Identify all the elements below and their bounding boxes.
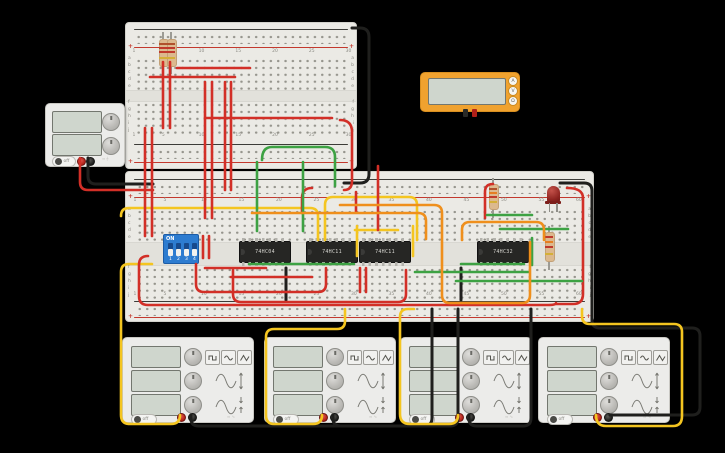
power-supply-power-label: off (64, 159, 70, 164)
fg-branding: ≈ ∿ (227, 415, 235, 420)
ic-pins (309, 238, 355, 242)
row-letter: c (128, 71, 130, 76)
column-number: 25 (314, 293, 320, 298)
power-supply-positive-terminal[interactable] (77, 157, 86, 166)
fg-branding: ≈ ∿ (369, 415, 377, 420)
column-number: 60 (576, 293, 582, 298)
power-supply-power-toggle[interactable]: off (52, 156, 76, 167)
column-number: 20 (272, 50, 278, 55)
fg-frequency-display (547, 346, 597, 368)
fg-ground-terminal[interactable] (188, 413, 197, 422)
red-led[interactable] (546, 186, 560, 214)
power-knob-icon (276, 416, 283, 423)
fg-signal-terminal[interactable] (319, 413, 328, 422)
power-supply-current-display (52, 134, 102, 156)
fg-power-label: off (559, 417, 565, 422)
column-number: 1 (134, 199, 137, 204)
square-wave-button[interactable] (347, 350, 362, 365)
fg-offset-display (409, 394, 459, 416)
column-number: 25 (314, 199, 320, 204)
column-number: 5 (164, 293, 167, 298)
row-letter: d (128, 229, 131, 234)
fg-power-toggle[interactable]: off (131, 414, 157, 425)
fg-amplitude-knob[interactable] (600, 372, 618, 390)
power-supply-voltage-display (52, 111, 102, 133)
resistor-2[interactable] (167, 32, 175, 74)
power-knob-icon (550, 416, 557, 423)
led-flange (545, 201, 561, 204)
power-knob-icon (55, 158, 62, 165)
row-letter: d (128, 78, 131, 83)
multimeter[interactable]: A V Ω (420, 72, 520, 112)
fg-ground-terminal[interactable] (604, 413, 613, 422)
fg-offset-display (547, 394, 597, 416)
plus-marker: + (586, 314, 591, 320)
rail-line (134, 179, 585, 180)
row-letter: c (589, 222, 591, 227)
fg-signal-terminal[interactable] (593, 413, 602, 422)
row-letter: a (588, 208, 591, 213)
power-supply-negative-terminal[interactable] (86, 157, 95, 166)
column-number: 30 (346, 134, 352, 139)
function-generator-1[interactable]: off≈ ∿ (122, 337, 254, 423)
dip-on-label: ON (166, 236, 174, 242)
column-number: 50 (501, 293, 507, 298)
ic-pins (309, 262, 355, 266)
row-letter: g (128, 273, 131, 278)
ic-pins (242, 238, 288, 242)
fg-power-toggle[interactable]: off (409, 414, 435, 425)
multimeter-volts-button[interactable]: V (508, 86, 518, 96)
multimeter-ohms-button[interactable]: Ω (508, 96, 518, 106)
column-number: 25 (309, 50, 315, 55)
row-letter: a (351, 57, 354, 62)
row-letter: b (128, 64, 131, 69)
row-letter: g (128, 108, 131, 113)
square-wave-button[interactable] (483, 350, 498, 365)
fg-ground-terminal[interactable] (466, 413, 475, 422)
column-number: 45 (464, 293, 470, 298)
multimeter-amps-button[interactable]: A (508, 76, 518, 86)
column-number: 35 (389, 293, 395, 298)
sine-wave-button[interactable] (637, 350, 652, 365)
ic-label: 74HC32 (493, 249, 513, 255)
current-knob[interactable] (102, 137, 120, 155)
ic-74hc32[interactable]: 74HC32 (477, 241, 529, 263)
column-number: 55 (539, 293, 545, 298)
rail-line (134, 144, 348, 145)
plus-marker: + (128, 194, 133, 200)
row-letter: g (588, 273, 591, 278)
column-number: 10 (199, 134, 205, 139)
column-number: 1 (133, 134, 136, 139)
rail-line (134, 301, 585, 302)
multimeter-negative-terminal[interactable] (463, 109, 468, 117)
row-letter: c (352, 71, 354, 76)
row-letter: e (128, 85, 131, 90)
amps-button-label: A (511, 79, 514, 84)
row-letter: d (588, 229, 591, 234)
column-number: 1 (133, 50, 136, 55)
column-number: 40 (426, 199, 432, 204)
dip-number-3: 3 (185, 258, 188, 263)
square-wave-button[interactable] (205, 350, 220, 365)
row-letter: h (588, 280, 591, 285)
fg-ground-terminal[interactable] (330, 413, 339, 422)
fg-amplitude-display (273, 370, 323, 392)
dip-number-4: 4 (193, 258, 196, 263)
dip-slider-3[interactable] (184, 249, 189, 256)
row-letter: j (590, 294, 591, 299)
plus-marker: + (128, 314, 133, 320)
row-letter: a (128, 208, 131, 213)
volts-button-label: V (511, 89, 514, 94)
column-number: 10 (201, 293, 207, 298)
dip-slider-2[interactable] (176, 249, 181, 256)
ic-notch (361, 249, 365, 255)
fg-offset-display (273, 394, 323, 416)
fg-offset-display (131, 394, 181, 416)
fg-power-label: off (285, 417, 291, 422)
ic-pins (480, 238, 526, 242)
dip-switch-3[interactable] (184, 243, 189, 256)
rail-line (134, 29, 348, 30)
column-number: 55 (539, 199, 545, 204)
plus-marker: + (586, 194, 591, 200)
fg-frequency-display (273, 346, 323, 368)
fg-amplitude-knob[interactable] (462, 372, 480, 390)
column-number: 20 (276, 293, 282, 298)
row-letter: f (589, 266, 591, 271)
fg-amplitude-display (131, 370, 181, 392)
column-number: 15 (235, 134, 241, 139)
dip-switch-4[interactable] (192, 243, 197, 256)
ic-label: 74HC04 (255, 249, 275, 255)
column-number: 30 (351, 199, 357, 204)
fg-signal-terminal[interactable] (455, 413, 464, 422)
triangle-wave-button[interactable] (515, 350, 530, 365)
row-letter: f (128, 266, 130, 271)
power-knob-icon (134, 416, 141, 423)
multimeter-positive-terminal[interactable] (472, 109, 477, 117)
ic-pins (362, 262, 408, 266)
row-letter: b (588, 215, 591, 220)
voltage-knob[interactable] (102, 113, 120, 131)
fg-offset-knob[interactable] (326, 396, 344, 414)
column-number: 15 (239, 199, 245, 204)
ic-pins (242, 262, 288, 266)
column-number: 10 (199, 50, 205, 55)
column-number: 5 (164, 199, 167, 204)
column-number: 10 (201, 199, 207, 204)
function-generator-3[interactable]: off≈ ∿ (400, 337, 532, 423)
dip-number-1: 1 (169, 258, 172, 263)
column-number: 30 (346, 50, 352, 55)
row-letter: j (128, 129, 129, 134)
fg-signal-terminal[interactable] (177, 413, 186, 422)
row-letter: i (590, 287, 591, 292)
fg-frequency-knob[interactable] (600, 348, 618, 366)
fg-amplitude-knob[interactable] (184, 372, 202, 390)
dot-grid (135, 304, 586, 316)
row-letter: f (128, 101, 130, 106)
rail-line (134, 317, 585, 318)
triangle-wave-button[interactable] (379, 350, 394, 365)
column-number: 25 (309, 134, 315, 139)
fg-offset-knob[interactable] (462, 396, 480, 414)
fg-frequency-display (131, 346, 181, 368)
fg-offset-knob[interactable] (600, 396, 618, 414)
fg-power-toggle[interactable]: off (273, 414, 299, 425)
row-letter: a (128, 57, 131, 62)
column-number: 15 (239, 293, 245, 298)
ic-label: 74HC11 (375, 249, 395, 255)
fg-power-label: off (143, 417, 149, 422)
dot-grid (135, 207, 586, 242)
sine-wave-button[interactable] (221, 350, 236, 365)
ic-74hc11-second[interactable]: 74HC11 (359, 241, 411, 263)
ic-notch (479, 249, 483, 255)
column-number: 20 (272, 134, 278, 139)
row-letter: e (351, 85, 354, 90)
ic-pins (480, 262, 526, 266)
led-anode-lead (549, 203, 551, 212)
row-letter: i (353, 122, 354, 127)
row-letter: i (128, 287, 129, 292)
fg-power-label: off (421, 417, 427, 422)
ic-74hc04[interactable]: 74HC04 (239, 241, 291, 263)
fg-amplitude-knob[interactable] (326, 372, 344, 390)
row-letter: j (128, 294, 129, 299)
dip-switch-1[interactable] (168, 243, 173, 256)
row-letter: g (351, 108, 354, 113)
row-letter: j (353, 129, 354, 134)
row-letter: i (128, 122, 129, 127)
column-number: 50 (501, 199, 507, 204)
triangle-wave-button[interactable] (653, 350, 668, 365)
ohms-button-label: Ω (511, 99, 514, 104)
ic-pins (362, 238, 408, 242)
row-letter: f (352, 101, 354, 106)
plus-marker: + (128, 159, 133, 165)
fg-frequency-knob[interactable] (326, 348, 344, 366)
resistor-4[interactable] (545, 226, 553, 270)
column-number: 40 (426, 293, 432, 298)
resistor-3[interactable] (489, 178, 497, 218)
row-letter: d (351, 78, 354, 83)
fg-frequency-display (409, 346, 459, 368)
fg-power-toggle[interactable]: off (547, 414, 573, 425)
power-supply-branding: ≈⏚ (102, 157, 109, 162)
triangle-wave-button[interactable] (237, 350, 252, 365)
sine-wave-button[interactable] (363, 350, 378, 365)
row-letter: h (128, 280, 131, 285)
dip-switch-2[interactable] (176, 243, 181, 256)
sine-wave-button[interactable] (499, 350, 514, 365)
dip-switch[interactable]: ON 1 2 3 4 (163, 234, 199, 264)
dip-slider-1[interactable] (168, 249, 173, 256)
column-number: 5 (162, 134, 165, 139)
column-number: 35 (389, 199, 395, 204)
ic-notch (241, 249, 245, 255)
power-supply[interactable]: off ≈⏚ (45, 103, 125, 167)
row-letter: e (128, 236, 131, 241)
row-letter: h (128, 115, 131, 120)
function-generator-4[interactable]: off≈ ∿ (538, 337, 670, 423)
fg-frequency-knob[interactable] (184, 348, 202, 366)
column-number: 1 (134, 293, 137, 298)
ic-label: 74HC11 (322, 249, 342, 255)
fg-branding: ≈ ∿ (505, 415, 513, 420)
circuit-canvas: ++151015202530151015202530++aabbccddeeff… (0, 0, 725, 453)
led-dome (547, 186, 560, 202)
fg-amplitude-display (547, 370, 597, 392)
column-number: 45 (464, 199, 470, 204)
row-letter: b (128, 215, 131, 220)
multimeter-display (428, 78, 506, 105)
row-letter: e (588, 236, 591, 241)
fg-frequency-knob[interactable] (462, 348, 480, 366)
dot-grid (135, 182, 586, 194)
resistor-1[interactable] (159, 32, 167, 74)
fg-amplitude-display (409, 370, 459, 392)
power-knob-icon (412, 416, 419, 423)
row-letter: c (128, 222, 130, 227)
dot-grid (134, 147, 350, 159)
square-wave-button[interactable] (621, 350, 636, 365)
fg-offset-knob[interactable] (184, 396, 202, 414)
plus-marker: + (349, 159, 354, 165)
column-number: 15 (235, 50, 241, 55)
row-letter: h (351, 115, 354, 120)
column-number: 30 (351, 293, 357, 298)
dip-number-2: 2 (177, 258, 180, 263)
led-cathode-lead (556, 203, 558, 212)
dip-slider-4[interactable] (192, 249, 197, 256)
fg-branding: ≈ ∿ (643, 415, 651, 420)
ic-74hc11-first[interactable]: 74HC11 (306, 241, 358, 263)
dot-grid (134, 100, 350, 135)
row-letter: b (351, 64, 354, 69)
ic-notch (308, 249, 312, 255)
column-number: 60 (576, 199, 582, 204)
rail-line (134, 162, 348, 163)
column-number: 20 (276, 199, 282, 204)
function-generator-2[interactable]: off≈ ∿ (264, 337, 396, 423)
